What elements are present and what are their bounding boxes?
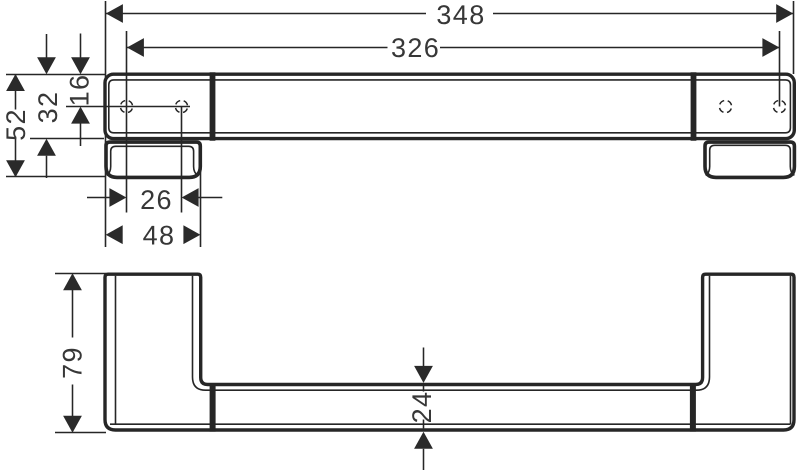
svg-text:48: 48 <box>143 220 176 250</box>
svg-text:24: 24 <box>407 391 437 424</box>
svg-text:326: 326 <box>391 33 440 63</box>
svg-text:79: 79 <box>58 346 88 379</box>
svg-text:52: 52 <box>1 108 31 141</box>
svg-text:32: 32 <box>33 91 63 124</box>
svg-text:16: 16 <box>65 74 95 107</box>
svg-text:348: 348 <box>436 0 485 30</box>
svg-text:26: 26 <box>140 185 173 215</box>
